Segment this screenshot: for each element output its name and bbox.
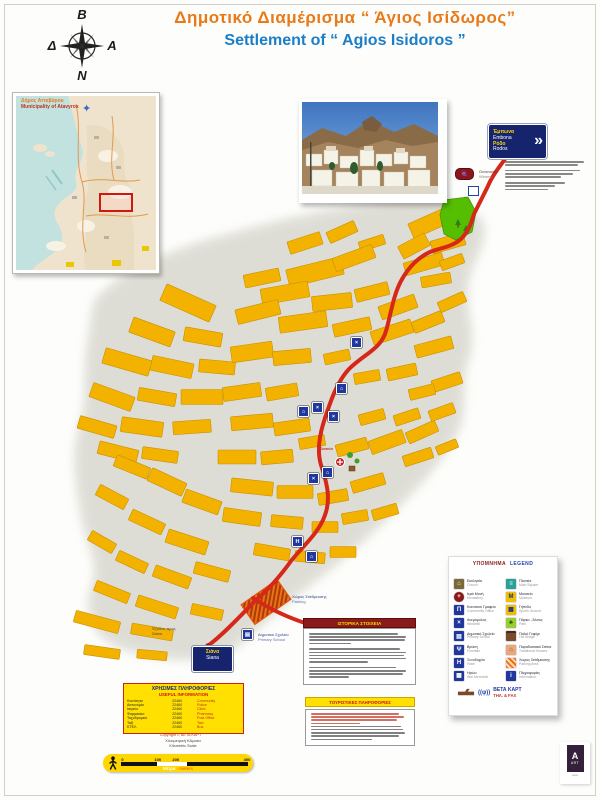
- legend-fountain-icon: Ψ: [454, 645, 464, 655]
- inset-map-canvas: Δήμος Ατταβύρου Municipality of Atavyros…: [16, 96, 156, 270]
- legend-hotel-icon: H: [454, 658, 464, 668]
- building-block: [272, 348, 311, 365]
- notes-box-title: ΤΟΥΡΙΣΤΙΚΕΣ ΠΛΗΡΟΦΟΡΙΕΣ: [305, 697, 415, 707]
- pointing-hand-icon: [457, 688, 475, 697]
- legend-item: ΠΚοινοτικό ΓραφείοCommunity Office: [454, 603, 504, 616]
- legend-label-english: Old Bridge: [519, 636, 540, 640]
- building-block: [199, 359, 236, 375]
- legend-item: ×ΑνεμόμυλοςWindmill: [454, 617, 504, 630]
- print-badge-logo: A ART: [567, 745, 584, 772]
- legend-label-english: Church: [467, 584, 482, 588]
- legend-label-english: War Memorial: [467, 676, 488, 680]
- logo-phi: ((φ)): [478, 690, 490, 696]
- arrow-right-icon: »: [534, 132, 546, 152]
- legend-column-right: ≡ΠλατείαMain SquareMΜουσείοMuseum▦Γήπεδο…: [506, 577, 556, 683]
- title-english: Settlement of “ Agios Isidoros ”: [150, 32, 540, 50]
- legend-label-english: Traditional Houses: [519, 650, 551, 654]
- publisher-phone: ΤΗΛ. & FAX: [493, 693, 521, 698]
- notes-box-text-red: [311, 713, 409, 724]
- poi-building-icon: ⌂: [298, 406, 309, 417]
- legend-item: ΨΒρύσηFountain: [454, 643, 504, 656]
- legend-label-english: Main Square: [519, 584, 538, 588]
- parking-label: Χώρος ΣτάθμευσηςParking: [292, 594, 327, 604]
- legend-item: ⌂ΕκκλησίαChurch: [454, 577, 504, 590]
- legend-label-english: Museum: [519, 597, 533, 601]
- print-badge: A ART ▪▪▪▪▪▪: [560, 742, 590, 784]
- info-title-english: USEFUL INFORMATION: [127, 692, 240, 697]
- history-box: ΙΣΤΟΡΙΚΑ ΣΤΟΙΧΕΙΑ: [303, 618, 416, 685]
- svg-text:Ν: Ν: [77, 68, 87, 82]
- building-block: [330, 547, 356, 558]
- poi-windmill-icon: ×: [328, 411, 339, 422]
- building-block: [83, 645, 120, 660]
- notes-box: ΤΟΥΡΙΣΤΙΚΕΣ ΠΛΗΡΟΦΟΡΙΕΣ: [305, 697, 415, 746]
- legend-item: ▦ΓήπεδοSports Ground: [506, 603, 556, 616]
- legend-parking-area-icon: [506, 658, 516, 668]
- square-label: Πλατεία: [318, 446, 333, 451]
- inset-compass-star-icon: ✦: [82, 102, 91, 115]
- legend-item: HΞενοδοχείοHotel: [454, 656, 504, 669]
- legend-item: Παλιό ΓεφύριOld Bridge: [506, 630, 556, 643]
- legend-item: ≡ΠλατείαMain Square: [506, 577, 556, 590]
- sign-line: Rodos: [493, 147, 534, 153]
- map-title: Δημοτικό Διαμέρισμα “ Άγιος Ισίδωρος” Se…: [150, 8, 540, 50]
- building-block: [173, 419, 212, 435]
- scale-units: Μέτρα - meters: [103, 766, 253, 771]
- legend-item: Χώρος ΣτάθμευσηςParking Area: [506, 656, 556, 669]
- chapel-icon: [468, 186, 479, 196]
- winery-icon: 🍇: [455, 168, 474, 180]
- legend-sports-ground-icon: ▦: [506, 605, 516, 615]
- legend-label-english: Hotel: [467, 663, 485, 667]
- winery-label: ΟινοποιείοWinery: [479, 169, 498, 179]
- legend-community-office-icon: Π: [454, 605, 464, 615]
- legend-war-memorial-icon: ▦: [454, 671, 464, 681]
- scale-title: Χιλιομετρική ΚλίμακαKilometric Scale: [128, 739, 238, 749]
- scale-bar-segments: [121, 762, 248, 766]
- poi-building-icon: ⌂: [322, 467, 333, 478]
- title-greek: Δημοτικό Διαμέρισμα “ Άγιος Ισίδωρος”: [150, 8, 540, 28]
- legend-windmill-icon: ×: [454, 618, 464, 628]
- scale-tick-label: 400: [244, 757, 251, 762]
- legend-primary-school-icon: ▤: [454, 631, 464, 641]
- building-block: [181, 390, 223, 405]
- history-box-title: ΙΣΤΟΡΙΚΑ ΣΤΟΙΧΕΙΑ: [303, 618, 416, 628]
- church-icon: [336, 458, 345, 467]
- square-kiosk: [349, 466, 355, 471]
- legend-label-english: Parking Area: [519, 663, 550, 667]
- legend-traditional-houses-icon: ⌂: [506, 645, 516, 655]
- poi-school-icon: ▤: [242, 629, 253, 640]
- legend-museum-icon: M: [506, 592, 516, 602]
- scale-tick-label: 200: [172, 757, 179, 762]
- building-block: [271, 515, 304, 530]
- legend-park-icon: ♣: [506, 618, 516, 628]
- useful-info-box: ΧΡΗΣΙΜΕΣ ΠΛΗΡΟΦΟΡΙΕΣ USEFUL INFORMATION …: [123, 683, 244, 734]
- svg-text:Α: Α: [106, 38, 116, 53]
- history-box-text: [303, 628, 416, 685]
- poi-hotel-icon: H: [292, 536, 303, 547]
- legend-label-english: Fountain: [467, 650, 480, 654]
- legend-item: +Ιερά ΜονήMonastery: [454, 590, 504, 603]
- legend-panel: ΥΠΟΜΝΗΜΑLEGEND ⌂ΕκκλησίαChurch+Ιερά Μονή…: [448, 556, 558, 716]
- inset-title-english: Municipality of Atavyros: [21, 105, 79, 111]
- exit-note: Έξοδος προςΣιάνα: [152, 626, 176, 636]
- publisher-logo: ((φ)) ΒΕΤΑ ΚΑΡΤ ΤΗΛ. & FAX: [457, 687, 522, 698]
- exit-sign: Σιάνα Siana: [192, 646, 233, 672]
- legend-label-english: Sports Ground: [519, 610, 541, 614]
- print-badge-caption: ▪▪▪▪▪▪: [560, 773, 590, 777]
- poi-building-icon: ⌂: [336, 383, 347, 394]
- exit-sign-english: Siana: [193, 655, 232, 661]
- legend-item: ▦ΗρώοWar Memorial: [454, 669, 504, 682]
- school-label: Δημοτικό ΣχολείοPrimary School: [258, 632, 289, 642]
- legend-monastery-icon: +: [454, 592, 464, 602]
- legend-item: ▤Δημοτικό ΣχολείοPrimary School: [454, 630, 504, 643]
- building-block: [218, 450, 256, 464]
- legend-item: ♣Πάρκο - ΆλσοςPark: [506, 617, 556, 630]
- inset-title: Δήμος Ατταβύρου Municipality of Atavyros: [21, 99, 79, 111]
- poi-windmill-icon: ×: [312, 402, 323, 413]
- building-block: [277, 486, 313, 499]
- legend-title: ΥΠΟΜΝΗΜΑLEGEND: [449, 561, 557, 567]
- scale-tick-label: 0: [121, 757, 123, 762]
- svg-text:Δ: Δ: [47, 38, 57, 53]
- poi-windmill-icon: ×: [308, 473, 319, 484]
- legend-church-icon: ⌂: [454, 579, 464, 589]
- legend-label-english: Windmill: [467, 623, 486, 627]
- info-rows: Κοινότητα22460CommunityΑστυνομία22460Pol…: [127, 699, 240, 730]
- legend-label-english: Primary School: [467, 636, 495, 640]
- legend-item: ⌂Παραδοσιακά ΣπίτιαTraditional Houses: [506, 643, 556, 656]
- inset-locator-map: Δήμος Ατταβύρου Municipality of Atavyros…: [12, 92, 160, 274]
- inset-highlight-rectangle: [100, 194, 132, 211]
- direction-sign: ΈμπωναEmbonaΡόδοRodos »: [488, 124, 547, 159]
- legend-label-english: Community Office: [467, 610, 496, 614]
- legend-label-english: Monastery: [467, 597, 484, 601]
- legend-item: iΠληροφορίεςInformation: [506, 669, 556, 682]
- scale-tick-label: 100: [154, 757, 161, 762]
- building-block: [260, 449, 293, 465]
- legend-old-bridge-icon: [506, 631, 516, 641]
- compass-rose-icon: Β Α Ν Δ: [44, 6, 120, 82]
- legend-main-square-icon: ≡: [506, 579, 516, 589]
- village-photo: [299, 99, 447, 203]
- poi-windmill-icon: ×: [351, 337, 362, 348]
- legend-column-left: ⌂ΕκκλησίαChurch+Ιερά ΜονήMonasteryΠΚοινο…: [454, 577, 504, 683]
- direction-sign-lines: ΈμπωναEmbonaΡόδοRodos: [489, 130, 534, 152]
- legend-information-icon: i: [506, 671, 516, 681]
- legend-label-english: Park: [519, 623, 543, 627]
- scale-bar: 0100200400 Μέτρα - meters: [103, 754, 253, 772]
- copyright-line: Copyright © ΒΕΤΑ ΚΑΡΤ: [128, 733, 233, 737]
- svg-text:Β: Β: [77, 7, 86, 22]
- sign-footnotes: [505, 161, 588, 192]
- notes-box-text: [311, 726, 409, 740]
- legend-item: MΜουσείοMuseum: [506, 590, 556, 603]
- poi-building-icon: ⌂: [306, 551, 317, 562]
- info-row: ΚΤΕΛ22460Bus: [127, 725, 240, 729]
- legend-label-english: Information: [519, 676, 540, 680]
